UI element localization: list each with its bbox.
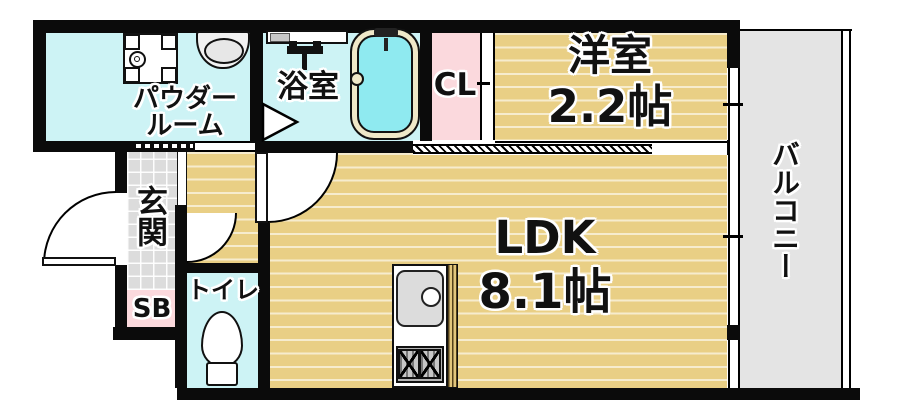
wall-entrance-outer-upper	[115, 152, 127, 193]
tub-faucet-stem-icon	[384, 38, 388, 51]
tub-faucet-icon	[374, 28, 398, 37]
toilet-tank-icon	[206, 362, 238, 386]
balcony-rail-inner-line	[841, 29, 843, 388]
ldk-name: LDK	[430, 215, 660, 260]
toilet-label: トイレ	[186, 278, 260, 302]
closet-label: CL	[430, 70, 480, 101]
floorplan: パウダー ルーム 浴室 CL 洋室 2.2帖 バルコニー 玄関 SB トイレ L…	[0, 0, 902, 416]
shower-pipe-icon	[302, 54, 307, 70]
window-latch-tick-upper	[723, 103, 743, 106]
western-room-label: 洋室 2.2帖	[500, 35, 720, 129]
shower-knob-left-icon	[289, 41, 297, 47]
drain-icon	[129, 51, 146, 68]
accordion-partition-icon	[413, 144, 652, 154]
entrance-label: 玄関	[133, 185, 164, 247]
entrance-door-arc	[43, 191, 116, 264]
western-room-name: 洋室	[500, 35, 720, 77]
wall-bottom	[177, 388, 860, 400]
balcony-top-line	[740, 29, 852, 31]
pocket-door-dashes	[136, 144, 193, 148]
sliding-track-line	[495, 141, 727, 143]
powder-room-label-line2: ルーム	[85, 113, 285, 139]
wall-left-upper	[33, 20, 46, 152]
window-latch-tick-lower	[723, 235, 743, 238]
balcony-window	[728, 68, 740, 325]
balcony-rail-outer-line	[849, 29, 851, 388]
wall-toilet-top	[175, 263, 270, 273]
wall-right-upper	[727, 20, 740, 68]
shower-fixture-icon	[287, 46, 323, 54]
ldk-door-leaf	[255, 152, 268, 223]
entrance-door-leaf	[42, 257, 116, 266]
ldk-size: 8.1帖	[430, 268, 660, 316]
washing-machine-pan-icon	[123, 33, 178, 84]
powder-room-label-line1: パウダー	[85, 86, 285, 112]
bath-counter-icon	[266, 30, 348, 44]
bath-label: 浴室	[258, 72, 358, 103]
closet-door	[480, 33, 495, 140]
balcony-fixed-panel	[728, 340, 740, 388]
shower-knob-right-icon	[313, 41, 321, 47]
stove-icon	[396, 346, 444, 383]
wall-powder-bottom	[33, 141, 133, 152]
ldk-label: LDK 8.1帖	[430, 215, 660, 316]
wall-right-mid-chunk	[727, 325, 740, 340]
sliding-door-leaf	[195, 141, 258, 152]
entrance-step-strip	[177, 152, 187, 205]
powder-room-label: パウダー ルーム	[85, 86, 285, 139]
wall-toilet-right	[258, 223, 270, 397]
balcony-label: バルコニー	[770, 140, 798, 280]
bathtub-icon	[350, 28, 420, 140]
shoebox-label: SB	[127, 296, 177, 322]
western-room-size: 2.2帖	[500, 84, 720, 129]
